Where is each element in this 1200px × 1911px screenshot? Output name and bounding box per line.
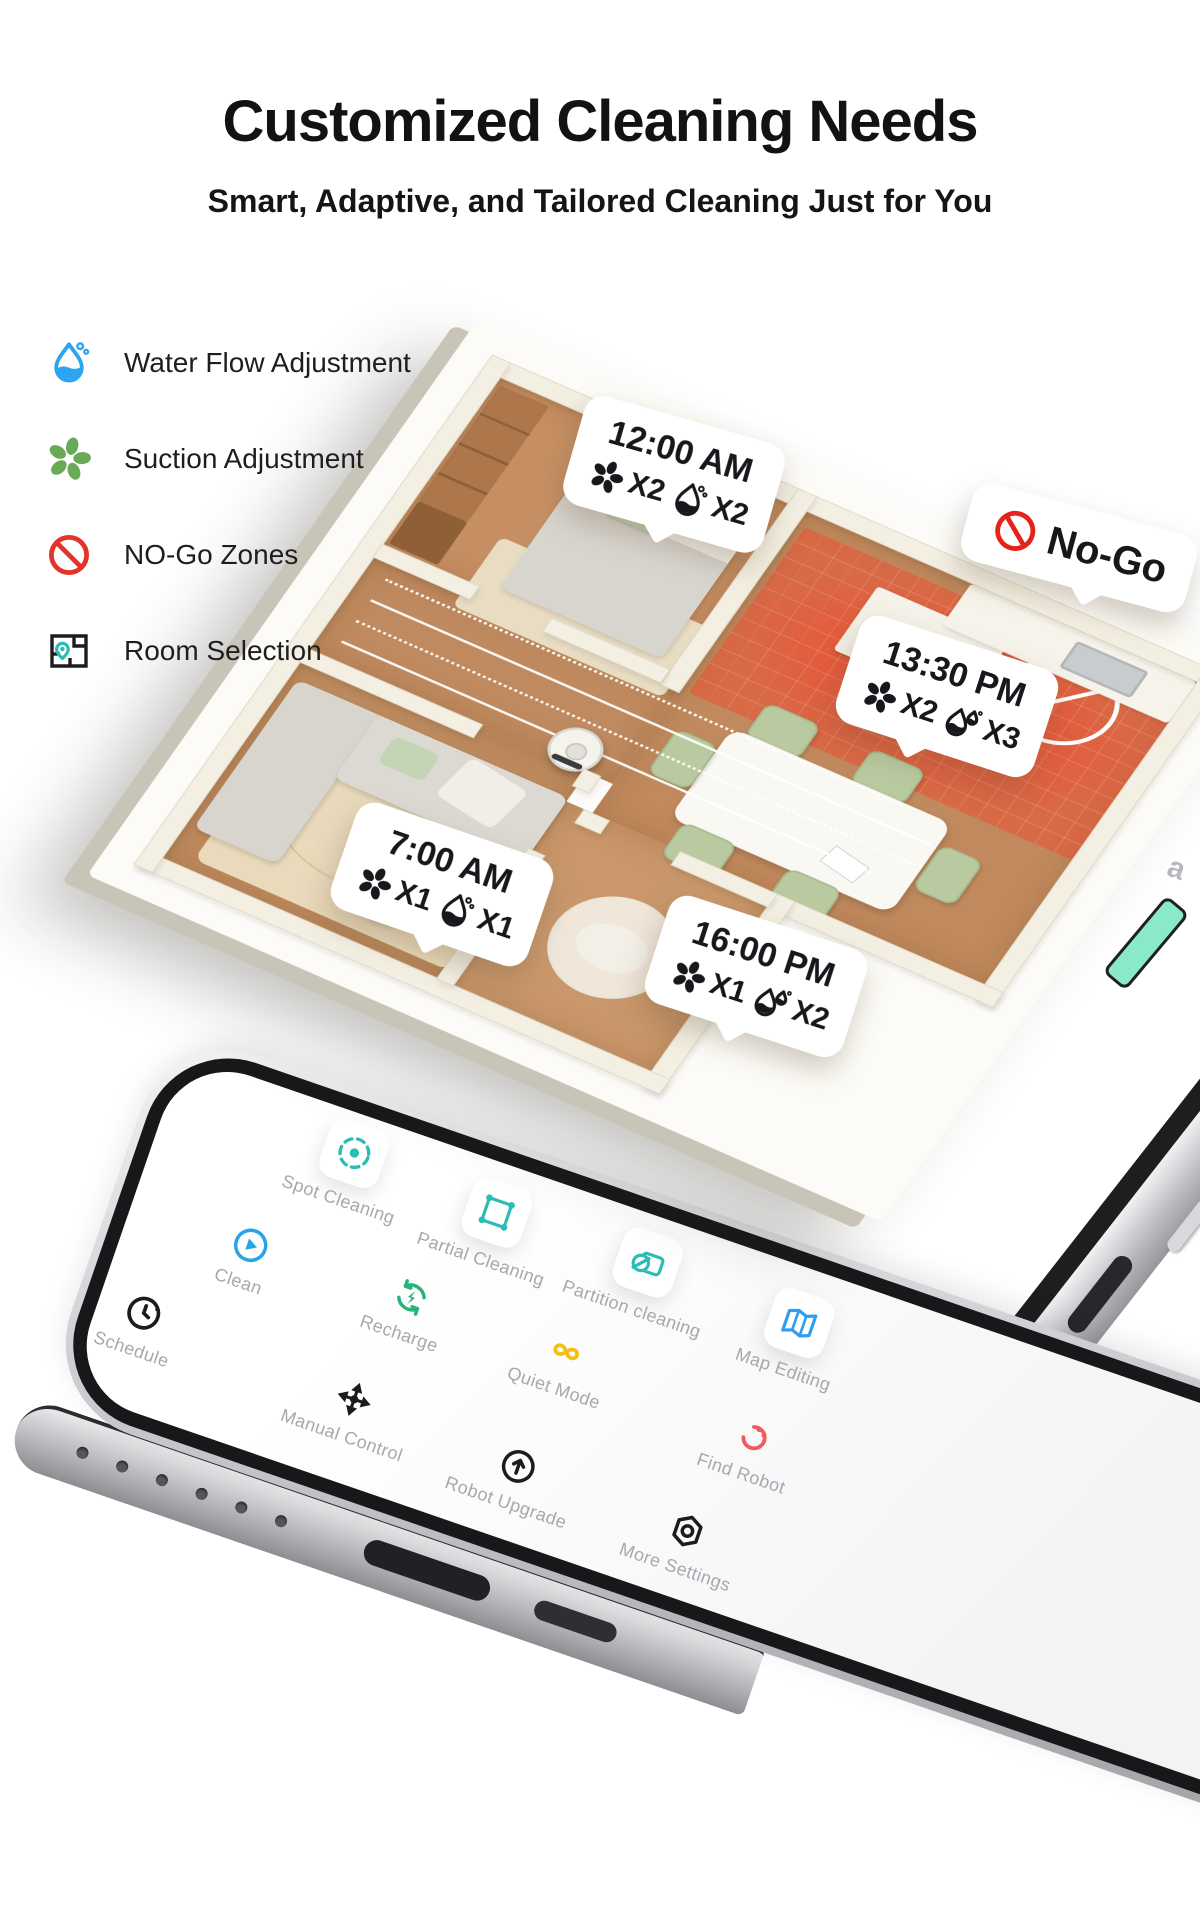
suction-fan-icon — [585, 454, 630, 499]
app-menu-find-robot[interactable]: Find Robot — [666, 1394, 830, 1509]
header: Customized Cleaning Needs Smart, Adaptiv… — [0, 0, 1200, 220]
feature-label: Room Selection — [124, 635, 322, 667]
schedule-icon — [118, 1288, 169, 1339]
app-tile — [608, 1223, 687, 1302]
app-menu-partial-cleaning[interactable]: Partial Cleaning — [406, 1159, 578, 1294]
feature-room-selection: Room Selection — [44, 626, 411, 676]
suction-fan-icon — [666, 953, 711, 998]
recharge-icon — [386, 1272, 437, 1323]
water-multiplier: X3 — [979, 714, 1024, 758]
speaker-hole-icon — [115, 1459, 130, 1474]
speaker-hole-icon — [194, 1486, 209, 1501]
speaker-slot — [531, 1598, 619, 1645]
app-menu-map-editing[interactable]: Map Editing — [709, 1269, 881, 1404]
page-subtitle: Smart, Adaptive, and Tailored Cleaning J… — [0, 183, 1200, 220]
feature-label: Water Flow Adjustment — [124, 347, 411, 379]
suction-multiplier: X1 — [705, 967, 750, 1011]
water-drop-icon — [664, 475, 713, 524]
robot-upgrade-icon — [493, 1441, 544, 1492]
speaker-hole-icon — [273, 1514, 288, 1529]
app-menu-label: Recharge — [357, 1311, 441, 1358]
app-menu-quiet-mode[interactable]: Quiet Mode — [479, 1308, 643, 1423]
feature-no-go: NO-Go Zones — [44, 530, 411, 580]
feature-legend: Water Flow Adjustment Suction Adjustment… — [44, 338, 411, 722]
phone-screen: Spot Cleaning Partial Cleaning Partition… — [68, 1053, 1200, 1883]
feature-label: NO-Go Zones — [124, 539, 298, 571]
find-robot-icon — [728, 1412, 779, 1463]
app-tile — [457, 1173, 536, 1252]
app-menu-clean[interactable]: Clean — [164, 1202, 328, 1317]
app-screen-button-fragment — [1102, 895, 1189, 991]
app-menu-more-settings[interactable]: More Settings — [600, 1488, 764, 1603]
water-drops-icon — [744, 977, 794, 1027]
no-go-label: No-Go — [1042, 518, 1172, 593]
water-multiplier: X2 — [708, 490, 753, 533]
app-menu-schedule[interactable]: Schedule — [68, 1270, 221, 1385]
app-tile — [760, 1284, 839, 1363]
partial-cleaning-icon — [471, 1187, 522, 1238]
feature-label: Suction Adjustment — [124, 443, 364, 475]
map-editing-icon — [774, 1298, 825, 1349]
quiet-mode-icon — [541, 1326, 592, 1377]
app-menu-label: Schedule — [91, 1327, 172, 1373]
page-title: Customized Cleaning Needs — [0, 88, 1200, 155]
app-menu-label: Clean — [211, 1264, 264, 1300]
suction-multiplier: X2 — [624, 467, 669, 510]
more-settings-icon — [662, 1506, 713, 1557]
speaker-hole-icon — [75, 1445, 90, 1460]
partition-cleaning-icon — [622, 1237, 673, 1288]
app-menu-manual-control[interactable]: Manual Control — [267, 1356, 431, 1471]
app-menu-recharge[interactable]: Recharge — [324, 1254, 488, 1369]
no-go-ban-icon — [986, 501, 1045, 560]
suction-fan-icon — [857, 673, 902, 718]
manual-control-icon — [329, 1374, 380, 1425]
feature-suction: Suction Adjustment — [44, 434, 411, 484]
app-menu-label: Quiet Mode — [504, 1362, 603, 1414]
app-menu-spot-cleaning[interactable]: Spot Cleaning — [264, 1099, 436, 1234]
spot-cleaning-icon — [329, 1128, 380, 1179]
suction-fan-icon — [352, 860, 398, 906]
clean-icon — [225, 1220, 276, 1271]
app-menu-label: Find Robot — [694, 1449, 788, 1499]
water-drop-icon — [44, 338, 94, 388]
speaker-hole-icon — [234, 1500, 249, 1515]
room-selection-icon — [44, 626, 94, 676]
feature-water-flow: Water Flow Adjustment — [44, 338, 411, 388]
suction-fan-icon — [44, 434, 94, 484]
water-drops-icon — [935, 697, 985, 747]
suction-multiplier: X1 — [391, 874, 437, 918]
suction-multiplier: X2 — [896, 687, 941, 731]
app-screen-text-fragment: a — [1163, 850, 1190, 888]
side-button — [1165, 1197, 1200, 1254]
water-multiplier: X1 — [473, 903, 519, 947]
water-multiplier: X2 — [788, 994, 833, 1038]
speaker-hole-icon — [154, 1473, 169, 1488]
app-menu-partition-cleaning[interactable]: Partition cleaning — [557, 1209, 729, 1344]
app-tile — [315, 1114, 394, 1193]
app-menu-robot-upgrade[interactable]: Robot Upgrade — [431, 1423, 595, 1538]
no-go-ban-icon — [44, 530, 94, 580]
